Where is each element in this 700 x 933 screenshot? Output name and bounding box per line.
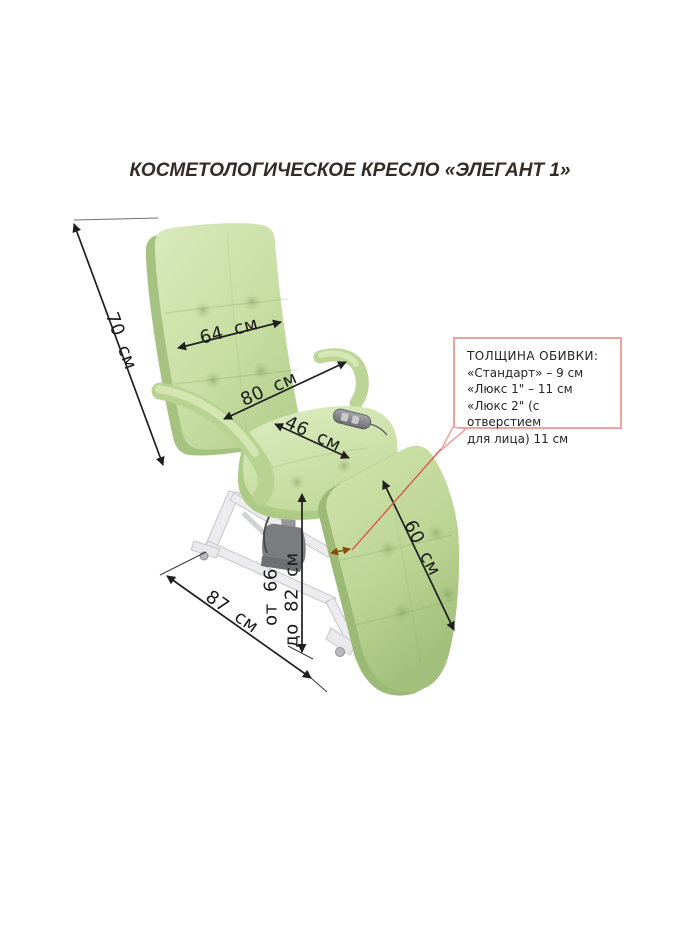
thickness-arrow — [331, 549, 350, 553]
label-height-min: от 66 — [261, 568, 282, 626]
label-height-max: до 82 см — [282, 552, 303, 647]
callout-leader-line — [352, 449, 441, 550]
dimension-overlay — [0, 0, 700, 933]
chair-dimension-diagram: КОСМЕТОЛОГИЧЕСКОЕ КРЕСЛО «ЭЛЕГАНТ 1» — [0, 0, 700, 933]
callout-tail — [441, 427, 466, 450]
